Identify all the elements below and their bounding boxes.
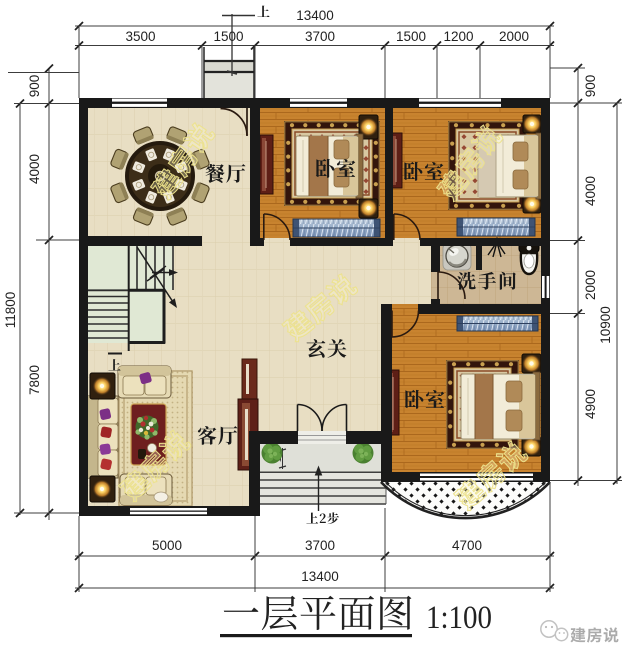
- svg-text:13400: 13400: [296, 8, 334, 23]
- svg-text:3500: 3500: [125, 29, 155, 44]
- svg-text:11800: 11800: [3, 292, 18, 329]
- svg-text:4000: 4000: [583, 176, 598, 206]
- svg-text:10900: 10900: [598, 306, 613, 344]
- svg-text:5000: 5000: [152, 538, 182, 553]
- svg-text:1:100: 1:100: [426, 600, 492, 636]
- svg-text:13400: 13400: [301, 569, 339, 584]
- svg-text:3700: 3700: [305, 538, 335, 553]
- svg-text:7800: 7800: [27, 365, 42, 395]
- svg-text:4000: 4000: [27, 154, 42, 184]
- svg-text:1500: 1500: [213, 29, 243, 44]
- svg-text:1200: 1200: [443, 29, 473, 44]
- svg-text:4900: 4900: [583, 389, 598, 419]
- svg-text:900: 900: [583, 75, 598, 98]
- svg-text:4700: 4700: [452, 538, 482, 553]
- svg-text:1500: 1500: [396, 29, 426, 44]
- svg-text:3700: 3700: [305, 29, 335, 44]
- svg-text:2000: 2000: [583, 270, 598, 300]
- svg-text:900: 900: [27, 75, 42, 98]
- svg-text:2000: 2000: [499, 29, 529, 44]
